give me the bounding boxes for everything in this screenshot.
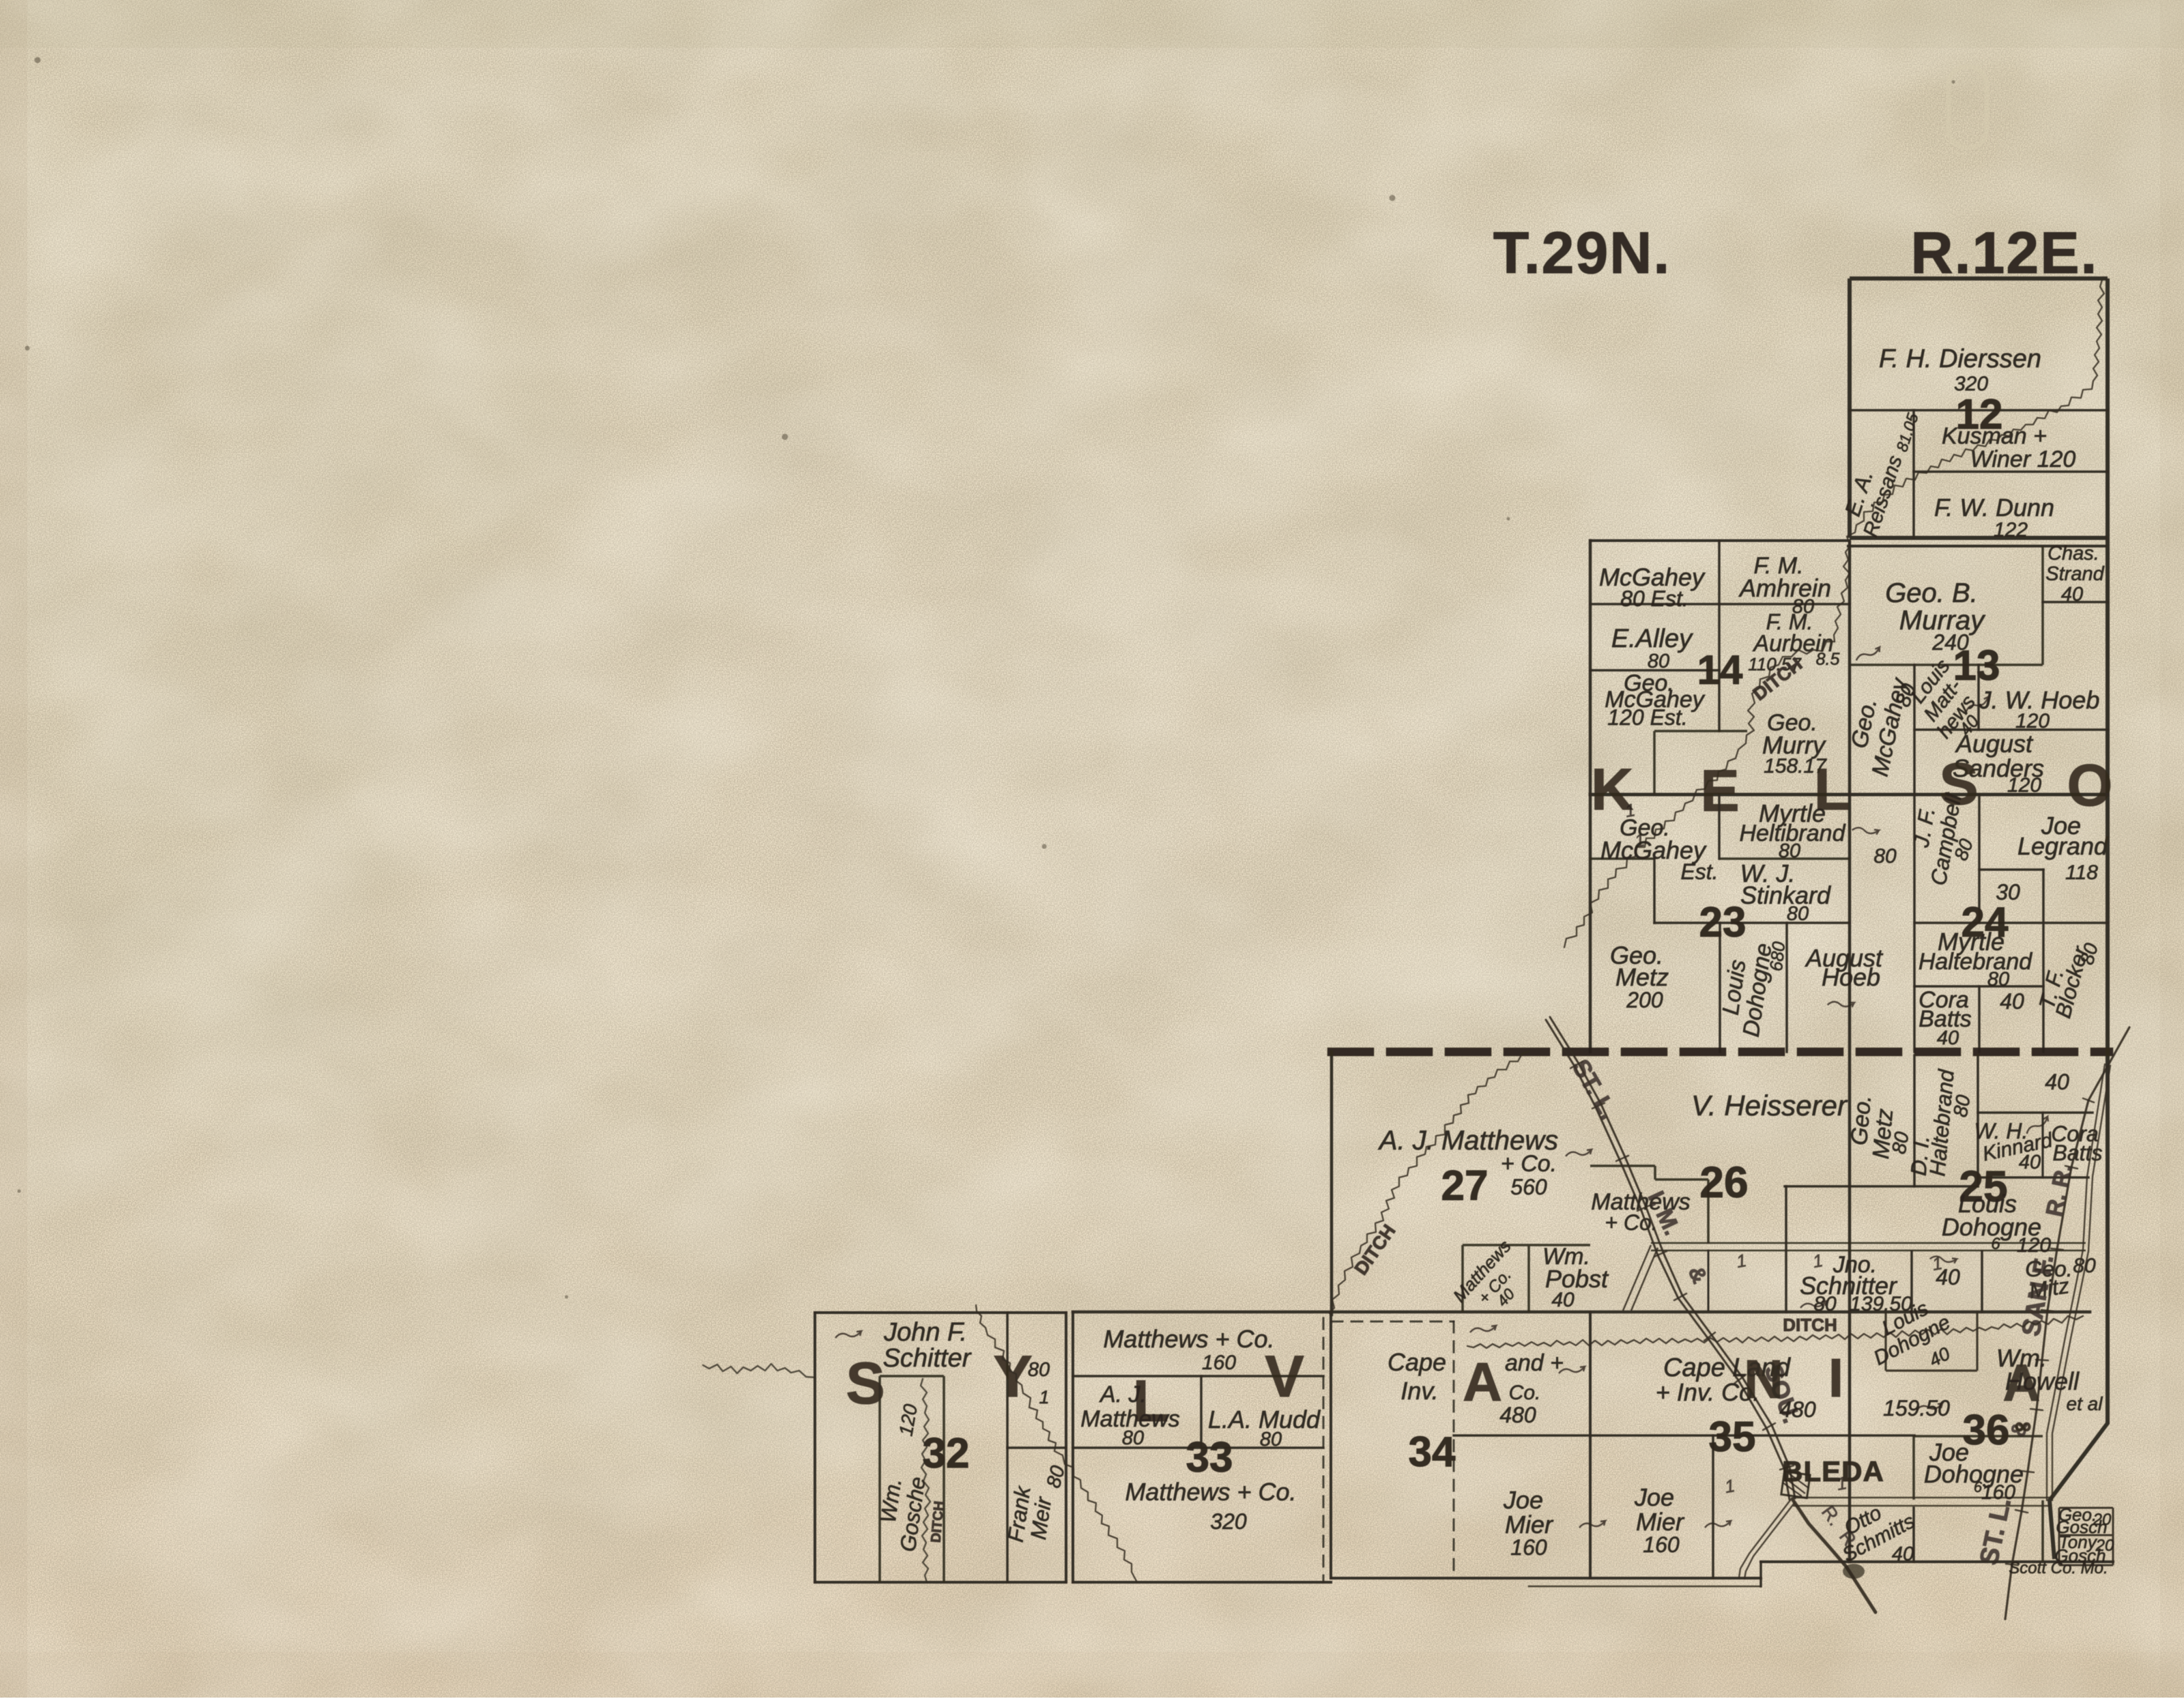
svg-text:80: 80 bbox=[1122, 1427, 1144, 1449]
svg-text:6: 6 bbox=[1991, 1235, 2000, 1253]
svg-text:23: 23 bbox=[1699, 899, 1747, 946]
svg-text:160: 160 bbox=[1981, 1481, 2015, 1504]
svg-text:40: 40 bbox=[1551, 1289, 1575, 1311]
svg-text:480: 480 bbox=[1499, 1403, 1536, 1427]
svg-text:26: 26 bbox=[1699, 1158, 1748, 1207]
svg-text:14: 14 bbox=[1697, 647, 1743, 693]
svg-text:F. H. Dierssen: F. H. Dierssen bbox=[1879, 345, 2041, 373]
svg-text:Est.: Est. bbox=[1680, 859, 1718, 884]
svg-text:E.Alley: E.Alley bbox=[1611, 625, 1693, 653]
svg-text:Mier: Mier bbox=[1636, 1508, 1685, 1536]
svg-text:200: 200 bbox=[1626, 988, 1663, 1012]
svg-text:80: 80 bbox=[1787, 903, 1809, 925]
svg-text:320: 320 bbox=[1210, 1509, 1247, 1534]
svg-text:Cape: Cape bbox=[1388, 1348, 1446, 1376]
svg-text:Inv.: Inv. bbox=[1400, 1377, 1438, 1405]
svg-text:680: 680 bbox=[1766, 940, 1789, 972]
svg-text:Amhrein: Amhrein bbox=[1738, 574, 1831, 602]
svg-text:159.50: 159.50 bbox=[1883, 1396, 1950, 1420]
svg-text:Co.: Co. bbox=[1509, 1382, 1541, 1404]
svg-text:Kusman +: Kusman + bbox=[1942, 423, 2047, 449]
svg-text:+ Co.: + Co. bbox=[1501, 1151, 1557, 1177]
svg-text:34: 34 bbox=[1409, 1429, 1456, 1476]
svg-text:8.5: 8.5 bbox=[1816, 650, 1840, 669]
svg-text:80: 80 bbox=[1987, 969, 2009, 990]
svg-text:560: 560 bbox=[1510, 1175, 1547, 1199]
svg-text:32: 32 bbox=[923, 1430, 970, 1477]
svg-text:120 Est.: 120 Est. bbox=[1607, 705, 1687, 730]
svg-text:N: N bbox=[1744, 1349, 1783, 1410]
svg-text:Joe: Joe bbox=[1634, 1483, 1674, 1511]
svg-text:6: 6 bbox=[1974, 1478, 1983, 1496]
svg-text:80 Est.: 80 Est. bbox=[1620, 586, 1689, 611]
svg-text:Matthews + Co.: Matthews + Co. bbox=[1103, 1325, 1274, 1353]
svg-text:Joe: Joe bbox=[1503, 1486, 1543, 1514]
svg-text:Haltebrand: Haltebrand bbox=[1919, 949, 2032, 975]
svg-text:160: 160 bbox=[1510, 1535, 1547, 1560]
svg-text:and +: and + bbox=[1505, 1350, 1564, 1376]
svg-text:A: A bbox=[1463, 1352, 1502, 1412]
svg-text:John F.: John F. bbox=[883, 1318, 967, 1347]
svg-text:13: 13 bbox=[1953, 642, 2000, 689]
svg-text:36: 36 bbox=[1963, 1407, 2010, 1454]
svg-text:S: S bbox=[846, 1351, 885, 1416]
svg-text:R.12E.: R.12E. bbox=[1911, 220, 2099, 286]
svg-text:T.29N.: T.29N. bbox=[1493, 220, 1671, 286]
svg-text:20: 20 bbox=[2093, 1511, 2112, 1529]
svg-text:Legrand: Legrand bbox=[2017, 832, 2108, 860]
svg-text:35: 35 bbox=[1709, 1414, 1756, 1461]
svg-text:DITCH: DITCH bbox=[1783, 1315, 1837, 1335]
svg-text:480: 480 bbox=[1779, 1397, 1816, 1422]
svg-text:Scott Co. Mo.: Scott Co. Mo. bbox=[2009, 1559, 2108, 1577]
svg-text:20: 20 bbox=[2095, 1536, 2114, 1555]
svg-text:80: 80 bbox=[1950, 1093, 1975, 1119]
svg-text:Strand: Strand bbox=[2045, 563, 2104, 585]
svg-text:118: 118 bbox=[2065, 861, 2098, 884]
svg-text:80: 80 bbox=[1028, 1359, 1050, 1381]
svg-text:80: 80 bbox=[1873, 845, 1897, 868]
svg-text:Mier: Mier bbox=[1505, 1511, 1554, 1539]
svg-text:80: 80 bbox=[1260, 1429, 1282, 1450]
svg-text:Winer 120: Winer 120 bbox=[1970, 446, 2076, 472]
svg-text:40: 40 bbox=[2000, 989, 2024, 1014]
svg-text:40: 40 bbox=[2019, 1152, 2041, 1173]
svg-text:F. W. Dunn: F. W. Dunn bbox=[1934, 494, 2054, 521]
svg-text:80: 80 bbox=[1648, 651, 1669, 672]
svg-text:Chas.: Chas. bbox=[2047, 543, 2099, 564]
svg-text:Metz: Metz bbox=[1615, 963, 1669, 991]
svg-text:V: V bbox=[1265, 1344, 1304, 1410]
svg-text:BLEDA: BLEDA bbox=[1782, 1455, 1884, 1487]
svg-text:Stinkard: Stinkard bbox=[1740, 881, 1831, 909]
svg-text:1: 1 bbox=[1039, 1387, 1049, 1407]
svg-text:40: 40 bbox=[2045, 1070, 2069, 1094]
svg-text:160: 160 bbox=[1643, 1532, 1680, 1557]
svg-text:40: 40 bbox=[1937, 1027, 1959, 1049]
svg-text:A. J.: A. J. bbox=[1099, 1382, 1147, 1407]
svg-text:27: 27 bbox=[1441, 1162, 1489, 1210]
svg-text:Hoeb: Hoeb bbox=[1822, 963, 1880, 991]
svg-text:et al: et al bbox=[2067, 1393, 2103, 1414]
svg-text:122: 122 bbox=[1994, 519, 2028, 541]
svg-text:Y: Y bbox=[993, 1344, 1032, 1410]
svg-text:I: I bbox=[1828, 1347, 1843, 1408]
svg-text:40: 40 bbox=[2061, 584, 2083, 605]
svg-text:40: 40 bbox=[1892, 1543, 1914, 1565]
svg-text:160: 160 bbox=[1202, 1352, 1236, 1374]
svg-text:Howell: Howell bbox=[2005, 1367, 2080, 1395]
svg-text:V. Heisserer: V. Heisserer bbox=[1691, 1089, 1848, 1121]
svg-text:Geo. B.: Geo. B. bbox=[1885, 578, 1978, 608]
svg-text:33: 33 bbox=[1186, 1434, 1233, 1481]
svg-text:Matthews + Co.: Matthews + Co. bbox=[1125, 1478, 1296, 1506]
svg-text:Schitter: Schitter bbox=[883, 1344, 972, 1373]
